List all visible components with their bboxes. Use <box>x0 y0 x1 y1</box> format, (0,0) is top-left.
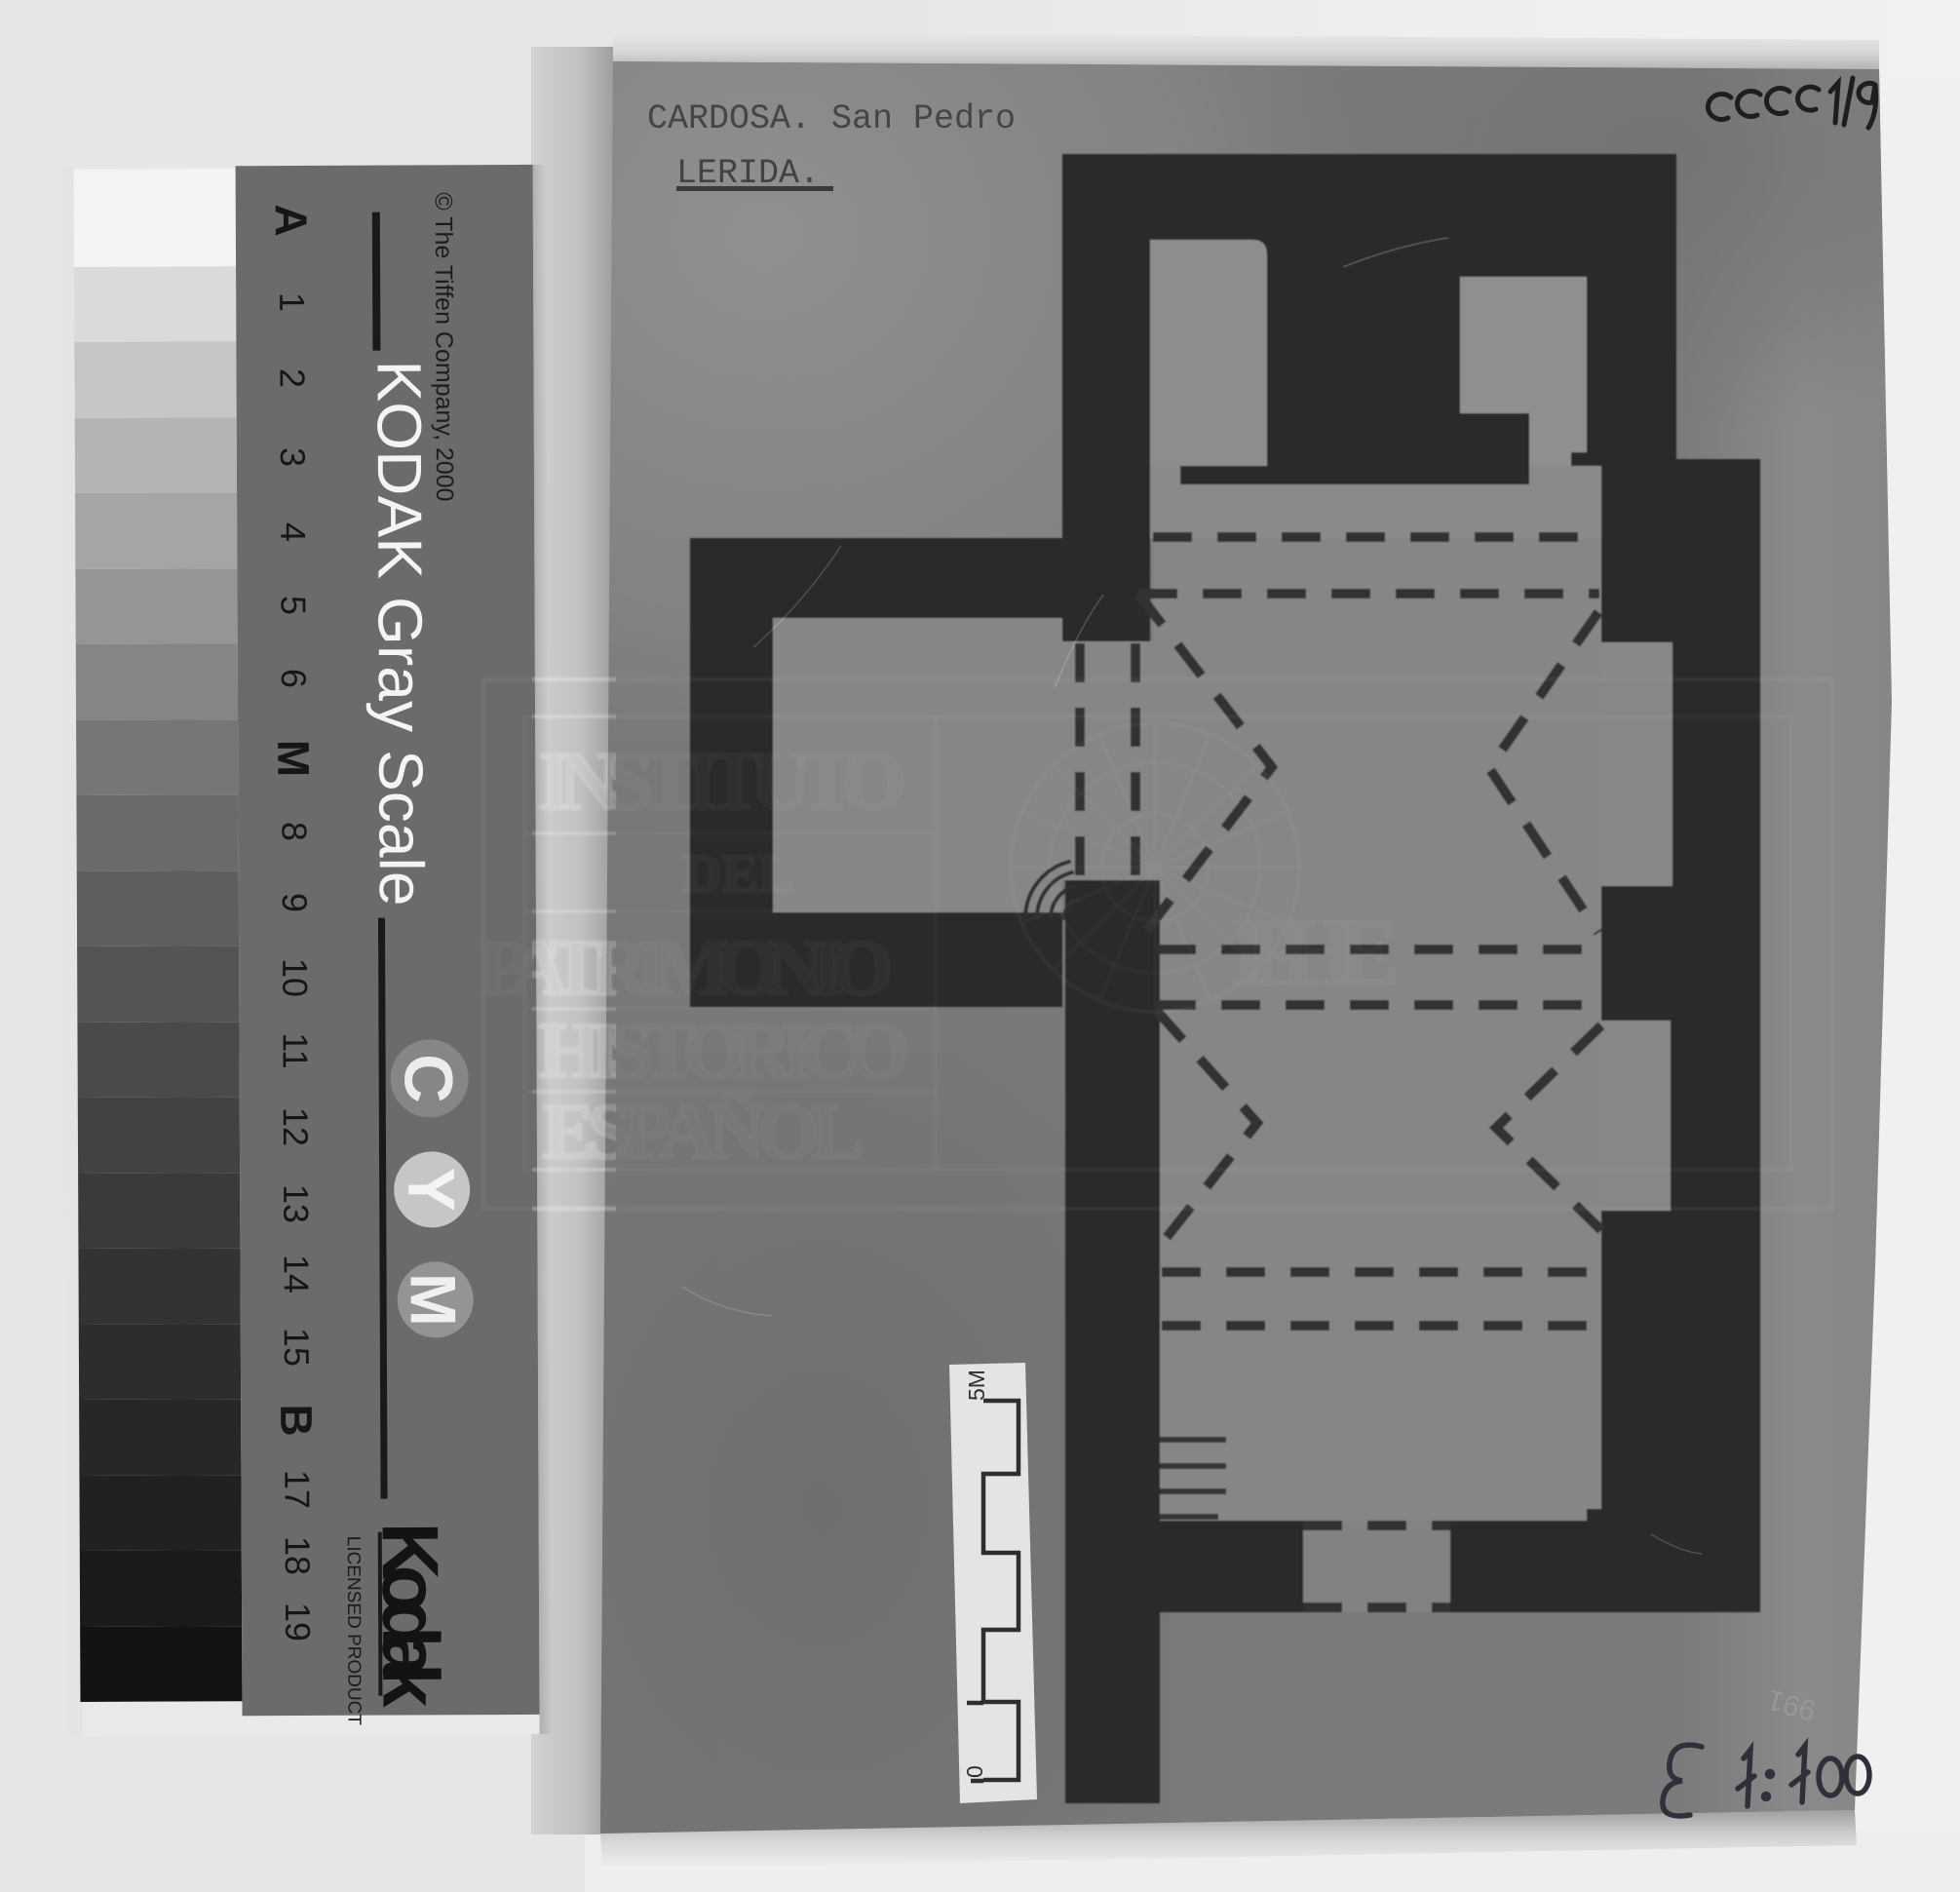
svg-text:11: 11 <box>275 1032 315 1069</box>
svg-text:M: M <box>268 740 319 778</box>
svg-text:15: 15 <box>277 1328 317 1367</box>
svg-text:M: M <box>398 1273 470 1327</box>
svg-text:10: 10 <box>275 958 315 997</box>
svg-text:KODAK Gray Scale: KODAK Gray Scale <box>364 360 436 906</box>
svg-text:C: C <box>391 1054 467 1103</box>
svg-text:18: 18 <box>278 1536 318 1575</box>
svg-text:9: 9 <box>275 893 315 912</box>
svg-text:1: 1 <box>272 292 312 312</box>
svg-text:CARDOSA. San Pedro: CARDOSA. San Pedro <box>647 99 1016 138</box>
svg-text:5M: 5M <box>964 1370 989 1401</box>
svg-text:0: 0 <box>962 1765 987 1778</box>
svg-text:17: 17 <box>277 1470 317 1509</box>
svg-text:A: A <box>266 204 317 236</box>
svg-text:LICENSED PRODUCT: LICENSED PRODUCT <box>343 1536 365 1726</box>
svg-text:2: 2 <box>273 368 313 388</box>
svg-text:4: 4 <box>273 522 313 542</box>
svg-text:B: B <box>271 1404 322 1436</box>
svg-text:© The Tiffen Company, 2000: © The Tiffen Company, 2000 <box>430 192 458 501</box>
svg-text:14: 14 <box>276 1255 316 1294</box>
svg-text:12: 12 <box>276 1107 316 1146</box>
svg-text:13: 13 <box>276 1184 316 1223</box>
svg-text:5: 5 <box>274 596 314 615</box>
svg-text:19: 19 <box>278 1602 318 1641</box>
svg-text:3: 3 <box>273 447 313 467</box>
svg-text:8: 8 <box>275 822 315 841</box>
svg-text:6: 6 <box>274 669 314 688</box>
svg-text:Y: Y <box>394 1168 468 1213</box>
